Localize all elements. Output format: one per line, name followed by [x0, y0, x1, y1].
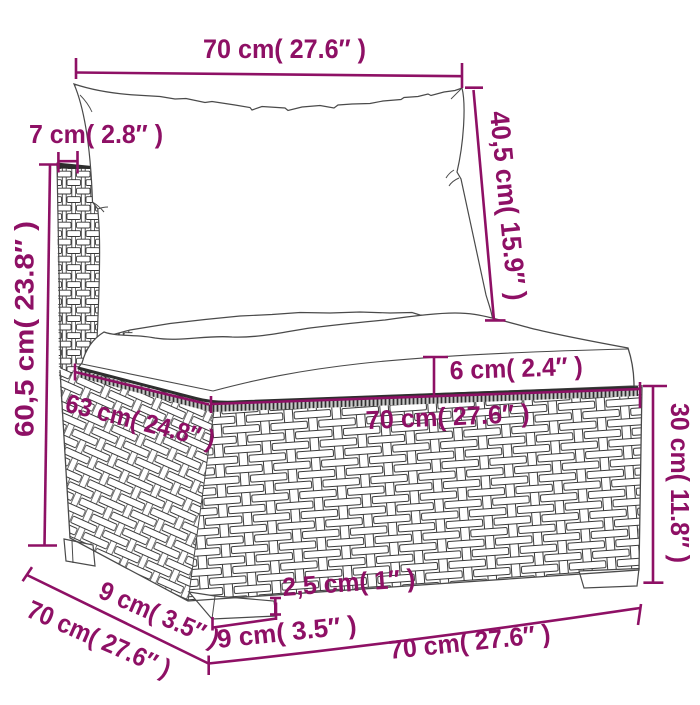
svg-text:60,5 cm( 23.8″ ): 60,5 cm( 23.8″ ): [10, 221, 40, 437]
svg-text:40,5 cm( 15.9″ ): 40,5 cm( 15.9″ ): [484, 110, 532, 302]
svg-text:70 cm( 27.6″ ): 70 cm( 27.6″ ): [387, 618, 551, 665]
svg-text:7 cm( 2.8″ ): 7 cm( 2.8″ ): [29, 119, 163, 149]
svg-text:30 cm( 11.8″ ): 30 cm( 11.8″ ): [665, 403, 695, 563]
svg-text:6 cm( 2.4″ ): 6 cm( 2.4″ ): [449, 351, 583, 386]
svg-text:70 cm( 27.6″ ): 70 cm( 27.6″ ): [203, 34, 366, 64]
